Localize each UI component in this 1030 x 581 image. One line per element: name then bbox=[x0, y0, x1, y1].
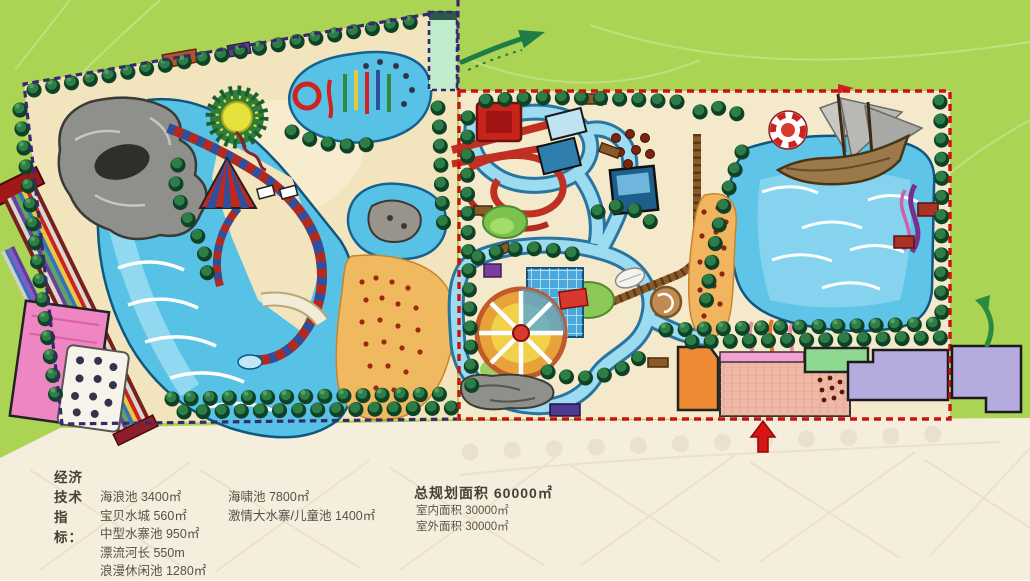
legend-column-2: 海啸池 7800㎡ 激情大水寨/儿童池 1400㎡ bbox=[228, 488, 375, 525]
indoor-area: 室内面积 30000㎡ bbox=[416, 503, 553, 519]
orange-building bbox=[678, 347, 718, 410]
total-planned-area: 总规划面积 60000㎡ bbox=[414, 483, 553, 503]
left-zone bbox=[0, 14, 457, 447]
sun-pavilion bbox=[210, 90, 264, 144]
legend-item: 宝贝水城 560㎡ bbox=[100, 507, 206, 526]
legend-heading: 经济技术指标： bbox=[54, 466, 83, 546]
legend-item: 激情大水寨/儿童池 1400㎡ bbox=[228, 507, 375, 526]
legend-item: 海浪池 3400㎡ bbox=[100, 488, 206, 507]
legend-item: 海啸池 7800㎡ bbox=[228, 488, 375, 507]
legend-item: 中型水寨池 950㎡ bbox=[100, 525, 206, 544]
island-pond bbox=[348, 184, 446, 260]
outdoor-area: 室外面积 30000㎡ bbox=[416, 519, 553, 535]
right-zone bbox=[452, 84, 950, 419]
kids-pool bbox=[289, 52, 431, 143]
legend-summary: 总规划面积 60000㎡ 室内面积 30000㎡ 室外面积 30000㎡ bbox=[414, 483, 553, 535]
plaza-strip bbox=[720, 352, 804, 362]
border-kiosk bbox=[550, 404, 580, 416]
legend-item: 浪漫休闲池 1280㎡ bbox=[100, 562, 206, 581]
spiral-bowl-slide bbox=[651, 287, 681, 317]
mint-annex bbox=[429, 0, 458, 90]
lifebuoy-feature bbox=[769, 111, 807, 149]
legend-column-1: 海浪池 3400㎡ 宝贝水城 560㎡ 中型水寨池 950㎡ 漂流河长 550m… bbox=[100, 488, 206, 581]
dining-terrace bbox=[57, 345, 130, 433]
master-plan-canvas: 经济技术指标： 海浪池 3400㎡ 宝贝水城 560㎡ 中型水寨池 950㎡ 漂… bbox=[0, 0, 1030, 580]
legend-item: 漂流河长 550m bbox=[100, 544, 206, 563]
